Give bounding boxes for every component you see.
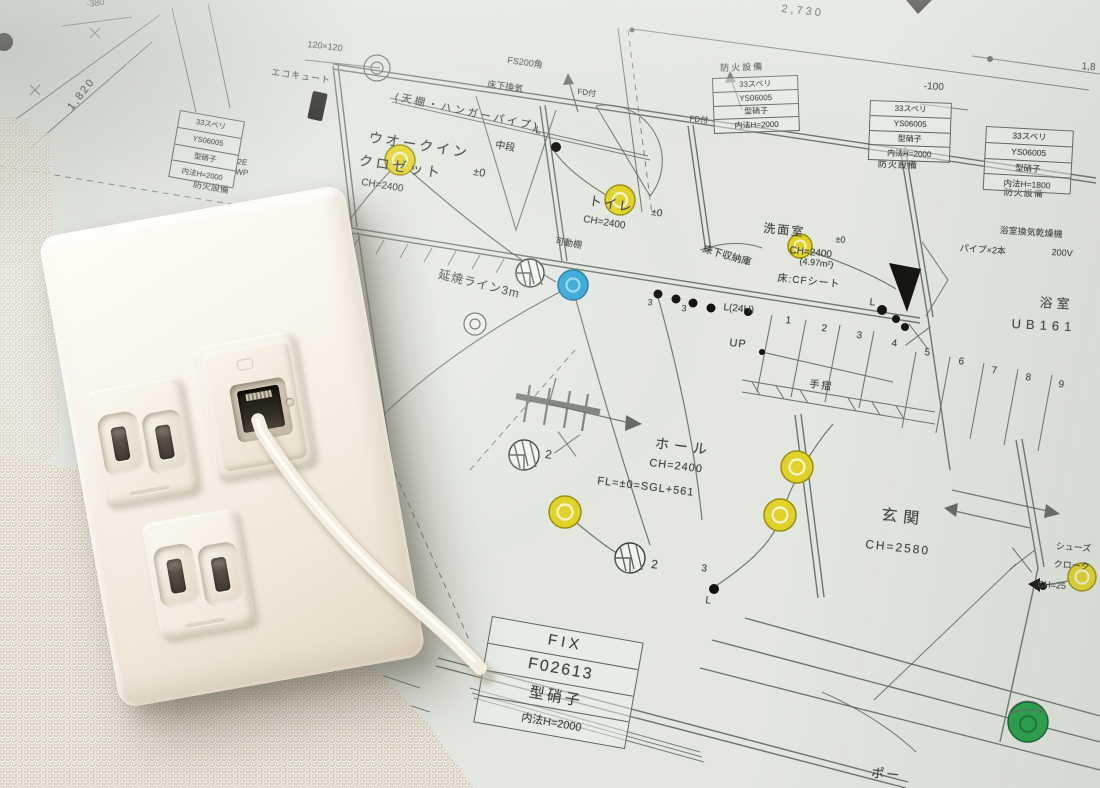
- stair-num-1: 1: [785, 316, 792, 327]
- phone-icon: [236, 358, 254, 372]
- label-l-mark-3: L: [705, 596, 712, 607]
- window-spec-box-a: 33スベリ YS06005 型硝子 内法H=2000: [168, 110, 245, 188]
- stair-num-5: 5: [924, 348, 931, 359]
- socket-slot-right: [155, 424, 176, 460]
- stair-num-9: 9: [1058, 380, 1065, 391]
- stair-num-4: 4: [891, 339, 898, 350]
- outlet-symbol: [464, 313, 486, 335]
- fire-caption-b: 防火設備: [720, 62, 764, 73]
- stair-num-2: 2: [821, 324, 828, 335]
- lan-jack-opening: [237, 385, 286, 434]
- socket-dimple: [140, 408, 190, 476]
- brand-emboss: [185, 617, 225, 628]
- socket-slot-right: [210, 556, 231, 592]
- sliding-door-hatch: [516, 385, 600, 431]
- label-l-mark-2: L: [869, 298, 875, 308]
- label-wp: WP: [235, 168, 249, 178]
- photo-of-floor-plan-with-outlet: -380 2,730 1,8 1,820 120×120 -100 エコキュート…: [0, 0, 1100, 788]
- downlight-symbols: [385, 145, 1096, 591]
- fire-caption-c: 防火設備: [878, 160, 918, 170]
- label-circuit-3c: 3: [701, 564, 708, 575]
- socket-dimple: [152, 542, 202, 610]
- room-walkin-level: ±0: [472, 167, 486, 180]
- window-spec-box-c: 33スベリ YS06005 型硝子 内法H=2000: [868, 100, 952, 163]
- bottom-fixture-ellipse: [308, 695, 351, 725]
- room-bathroom-name: 浴室: [1039, 296, 1074, 311]
- socket-slot-left: [166, 558, 187, 594]
- stair-num-8: 8: [1025, 373, 1032, 384]
- label-bath-voltage: 200V: [1051, 248, 1073, 258]
- socket-dimple: [96, 410, 146, 478]
- room-toilet-level: ±0: [650, 208, 662, 220]
- dim-level-offset: -100: [923, 82, 944, 93]
- socket-module-bottom: [141, 508, 256, 641]
- dim-top-right-partial: 1,8: [1081, 62, 1096, 73]
- toilet-fixture: [596, 128, 664, 178]
- stair-num-7: 7: [991, 366, 998, 377]
- stair-treads: [742, 315, 1052, 451]
- stair-num-3: 3: [856, 331, 863, 342]
- socket-dimple: [196, 540, 246, 608]
- washer-pan: [1043, 215, 1100, 275]
- label-circuit-3b: 3: [681, 304, 687, 313]
- vanity-fixture: [728, 143, 875, 237]
- screw: [285, 397, 295, 407]
- label-up: UP: [729, 338, 747, 351]
- label-circuit-3a: 3: [647, 298, 653, 307]
- label-l-mark-1: L: [535, 126, 542, 137]
- lan-jack-pins: [245, 390, 272, 401]
- room-bathroom-unit: UB161: [1011, 317, 1076, 333]
- window-spec-box-d: 33スベリ YS06005 型硝子 内法H=1800: [983, 126, 1074, 195]
- green-marker-dot: [1008, 701, 1048, 742]
- room-washroom-level: ±0: [835, 235, 846, 245]
- label-switch-2b: 2: [651, 558, 659, 571]
- lan-jack-recess: [229, 376, 294, 443]
- switch-symbols: [509, 259, 645, 573]
- bathtub-fixture: [940, 183, 1100, 331]
- label-2e: 2E: [237, 158, 248, 167]
- exhaust-fan-symbol: [558, 270, 588, 300]
- window-spec-box-b: 33スベリ YS06005 型硝子 内法H=2000: [712, 75, 800, 134]
- stair-num-6: 6: [958, 357, 965, 368]
- room-shoe-ch: CH=25: [1037, 580, 1066, 591]
- lan-module-face: [203, 339, 309, 472]
- room-porch-name: ポー: [871, 766, 902, 782]
- brand-emboss: [129, 485, 169, 496]
- lan-jack-module: [194, 330, 316, 481]
- label-switch-2a: 2: [544, 448, 552, 461]
- socket-slot-left: [110, 426, 131, 462]
- socket-module-top: [85, 375, 200, 508]
